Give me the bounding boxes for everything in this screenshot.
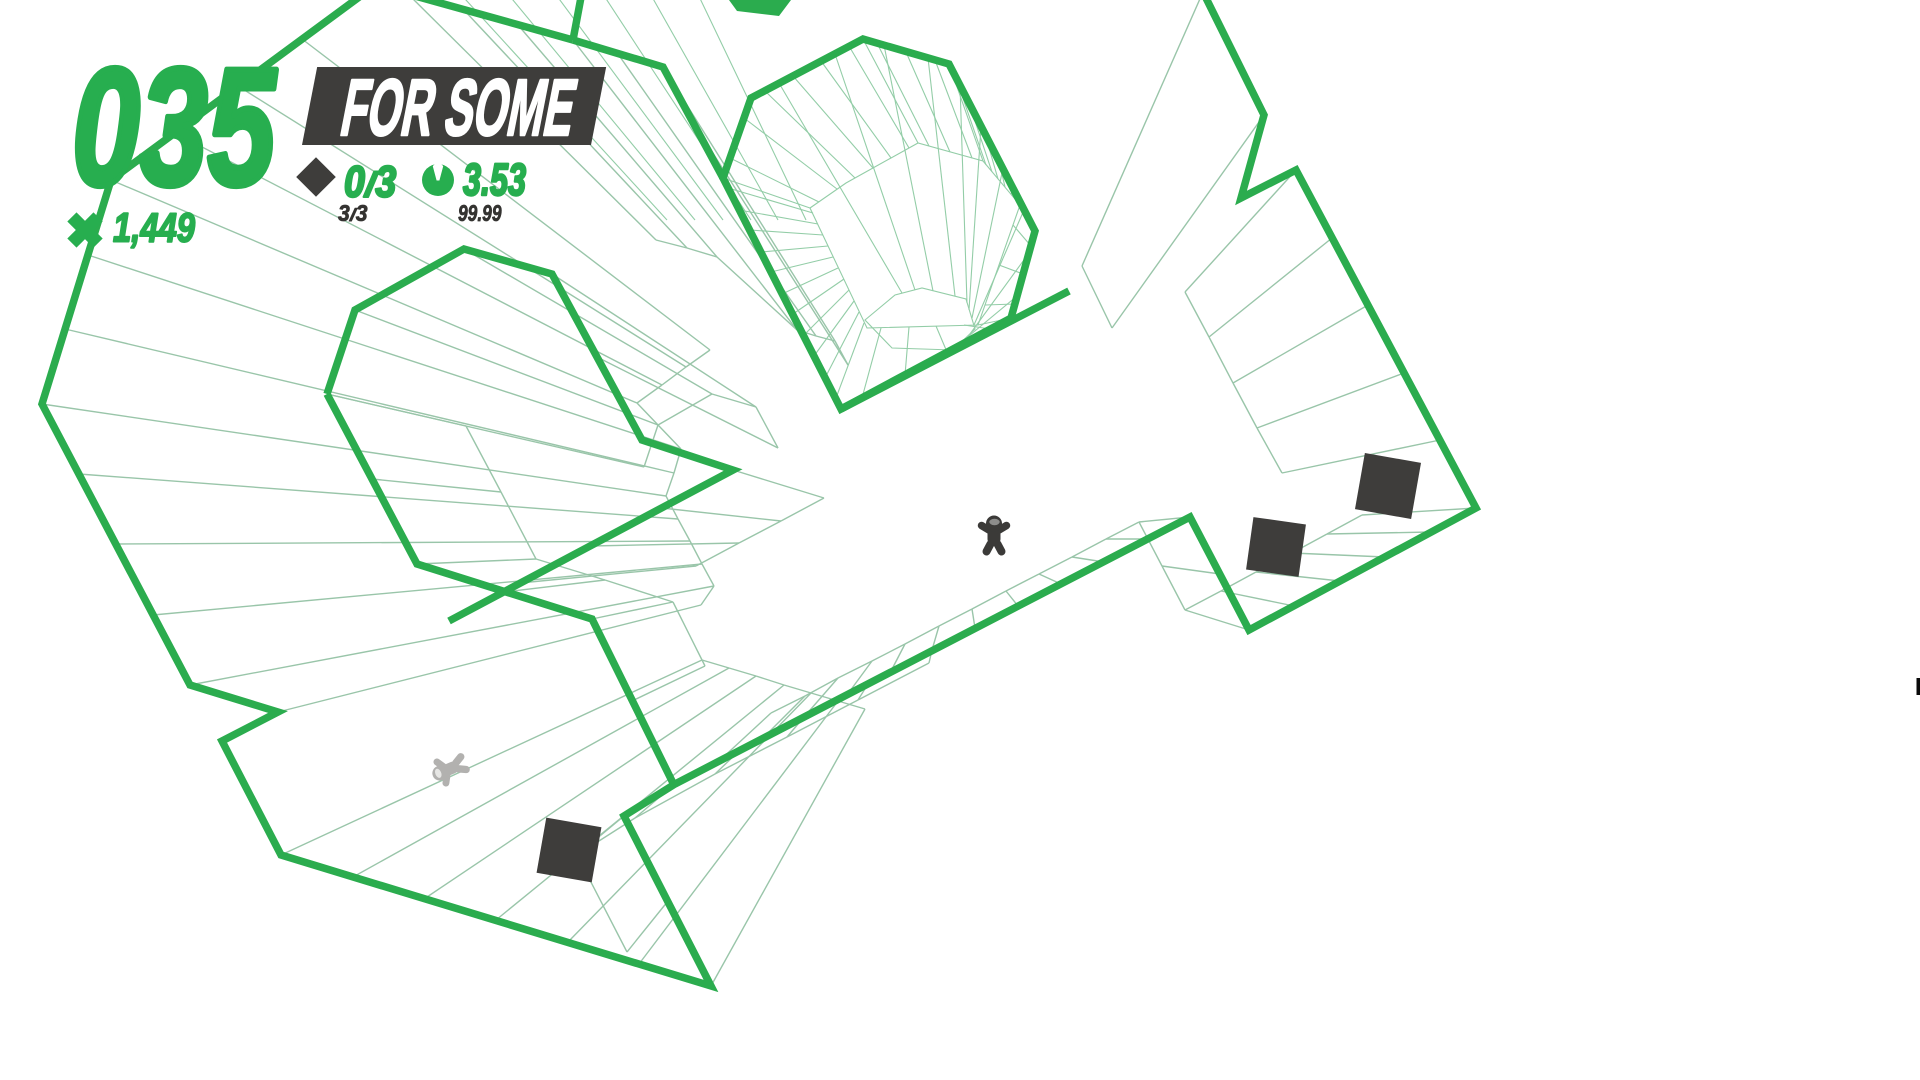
svg-text:99.99: 99.99 xyxy=(458,200,502,226)
svg-text:035: 035 xyxy=(72,34,278,220)
svg-text:FOR SOME: FOR SOME xyxy=(335,63,584,152)
svg-text:3.53: 3.53 xyxy=(463,156,526,205)
svg-text:3: 3 xyxy=(356,200,368,226)
svg-text:3: 3 xyxy=(375,157,396,207)
svg-text:3: 3 xyxy=(338,200,350,226)
svg-text:1,449: 1,449 xyxy=(113,204,195,250)
svg-text:0: 0 xyxy=(344,157,365,207)
